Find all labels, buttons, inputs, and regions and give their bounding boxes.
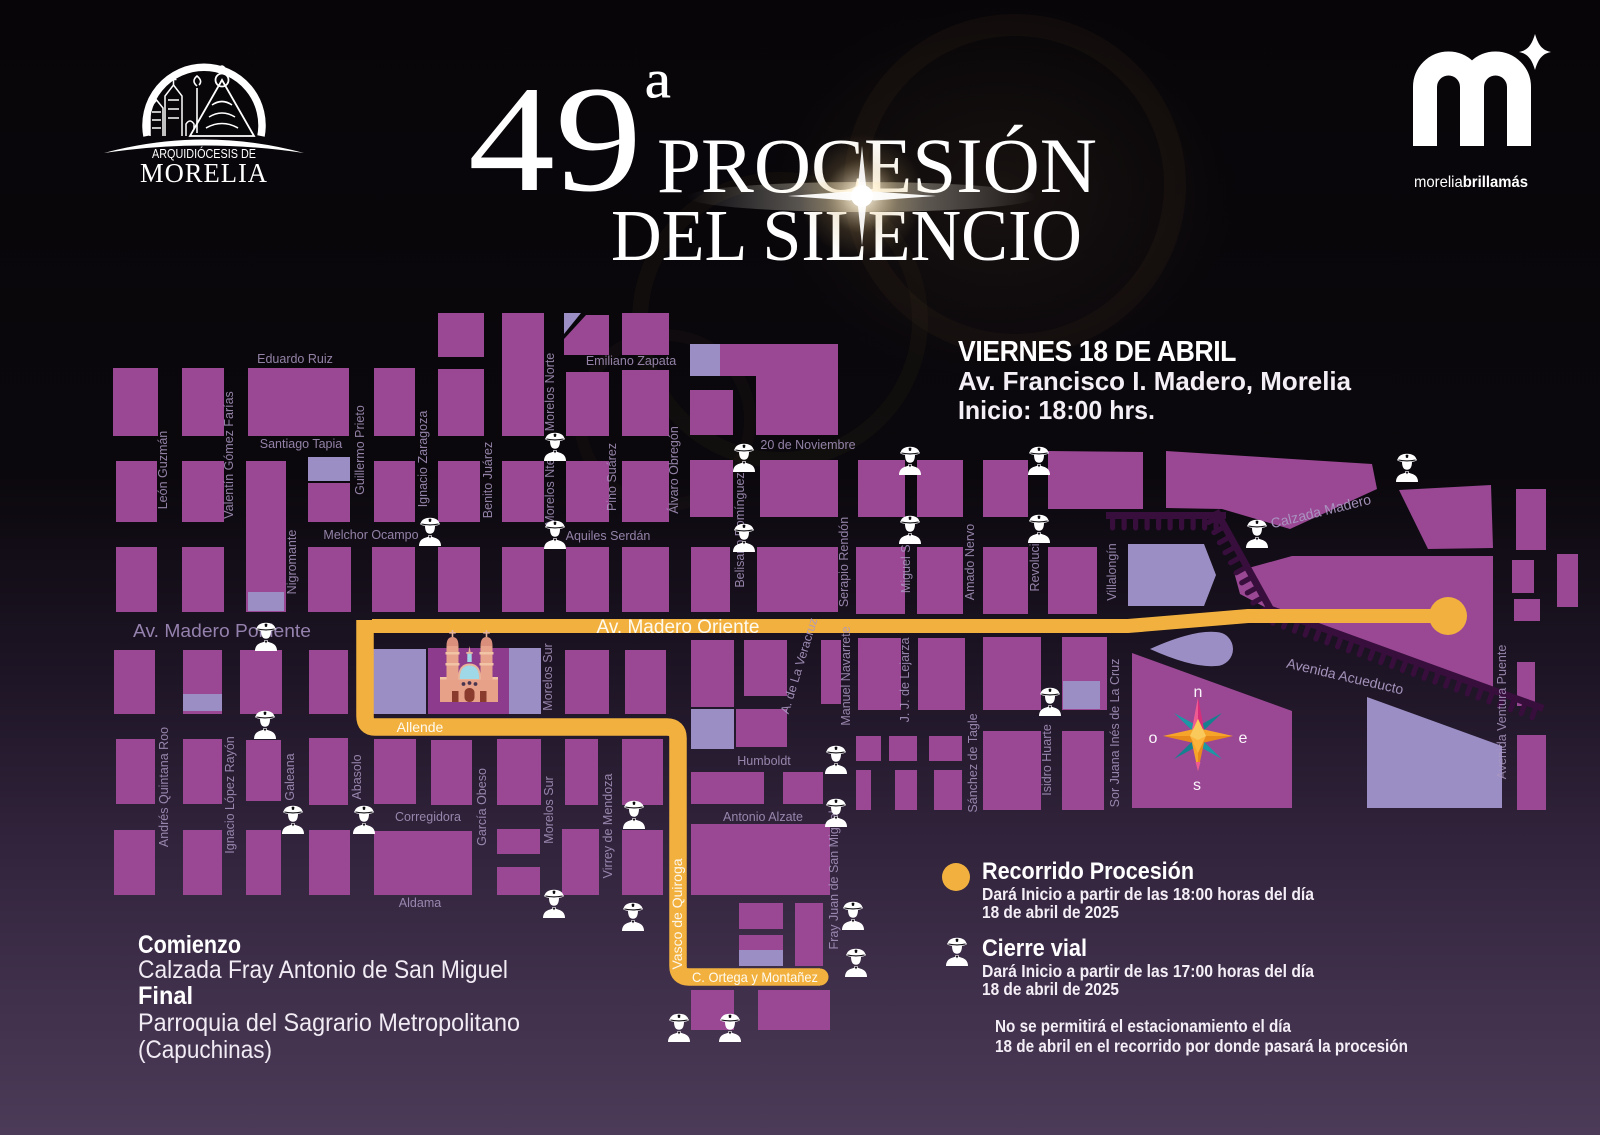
svg-text:Valentín Gómez Farías: Valentín Gómez Farías (222, 391, 236, 519)
svg-text:(Capuchinas): (Capuchinas) (138, 1036, 272, 1064)
svg-text:o: o (1149, 730, 1158, 747)
svg-text:No se permitirá el estacionami: No se permitirá el estacionamiento el dí… (995, 1016, 1291, 1036)
svg-text:Morelos Sur: Morelos Sur (541, 643, 555, 710)
svg-text:Allende: Allende (397, 719, 444, 735)
svg-text:Recorrido Procesión: Recorrido Procesión (982, 858, 1194, 885)
svg-text:Calzada Fray Antonio de San Mi: Calzada Fray Antonio de San Miguel (138, 956, 508, 984)
svg-text:Isidro Huarte: Isidro Huarte (1040, 724, 1054, 796)
svg-text:Andrés Quintana Roo: Andrés Quintana Roo (157, 727, 171, 847)
svg-text:Av. Francisco I. Madero, Morel: Av. Francisco I. Madero, Morelia (958, 366, 1352, 396)
svg-text:Humboldt: Humboldt (737, 754, 791, 768)
svg-text:Virrey de Mendoza: Virrey de Mendoza (601, 774, 615, 879)
svg-text:J. J. de Lejarza: J. J. de Lejarza (898, 638, 912, 723)
svg-text:Guillermo Prieto: Guillermo Prieto (353, 405, 367, 495)
svg-text:18 de abril de 2025: 18 de abril de 2025 (982, 979, 1119, 999)
svg-text:18 de abril en el recorrido po: 18 de abril en el recorrido por donde pa… (995, 1036, 1408, 1056)
svg-text:Final: Final (138, 982, 193, 1010)
svg-text:Galeana: Galeana (283, 753, 297, 800)
svg-text:C. Ortega y Montañez: C. Ortega y Montañez (692, 969, 818, 985)
svg-text:León Guzmán: León Guzmán (156, 431, 170, 510)
svg-text:Villalongín: Villalongín (1105, 543, 1119, 601)
svg-text:Avenida Ventura Puente: Avenida Ventura Puente (1495, 645, 1509, 780)
svg-text:Morelos Norte: Morelos Norte (543, 353, 557, 432)
svg-text:Nigromante: Nigromante (285, 530, 299, 595)
svg-text:Av. Madero Oriente: Av. Madero Oriente (597, 617, 760, 638)
svg-text:Dará Inicio a partir de las 18: Dará Inicio a partir de las 18:00 horas … (982, 884, 1314, 904)
svg-text:Cierre vial: Cierre vial (982, 935, 1087, 962)
svg-text:Manuel Navarrete: Manuel Navarrete (839, 626, 853, 725)
svg-text:Abasolo: Abasolo (350, 754, 364, 799)
svg-text:Álvaro Obregón: Álvaro Obregón (666, 426, 681, 514)
svg-text:Sor Juana Inés de La Cruz: Sor Juana Inés de La Cruz (1108, 659, 1122, 808)
svg-text:moreliabrillamás: moreliabrillamás (1414, 174, 1528, 191)
svg-text:Aldama: Aldama (399, 896, 441, 910)
svg-text:20 de Noviembre: 20 de Noviembre (760, 438, 855, 452)
svg-text:MORELIA: MORELIA (140, 158, 268, 188)
svg-text:s: s (1193, 777, 1201, 794)
svg-text:Morelos Nte: Morelos Nte (543, 458, 557, 525)
svg-text:n: n (1194, 684, 1203, 701)
svg-text:Melchor Ocampo: Melchor Ocampo (323, 528, 418, 542)
svg-text:Eduardo Ruiz: Eduardo Ruiz (257, 352, 333, 366)
svg-text:Inicio: 18:00 hrs.: Inicio: 18:00 hrs. (958, 395, 1155, 425)
svg-text:Emiliano Zapata: Emiliano Zapata (586, 354, 676, 368)
svg-text:Corregidora: Corregidora (395, 810, 461, 824)
svg-text:18 de abril de 2025: 18 de abril de 2025 (982, 902, 1119, 922)
svg-text:Santiago Tapia: Santiago Tapia (260, 437, 343, 451)
svg-text:e: e (1239, 730, 1248, 747)
svg-text:Amado Nervo: Amado Nervo (963, 524, 977, 600)
svg-text:Vasco de Quiroga: Vasco de Quiroga (669, 858, 685, 969)
svg-text:Pino Suárez: Pino Suárez (605, 443, 619, 511)
svg-text:Parroquia del Sagrario Metropo: Parroquia del Sagrario Metropolitano (138, 1009, 520, 1037)
svg-text:Dará Inicio a partir de las 17: Dará Inicio a partir de las 17:00 horas … (982, 961, 1314, 981)
svg-text:Serapio Rendón: Serapio Rendón (837, 517, 851, 607)
svg-text:Miguel Sil: Miguel Sil (899, 539, 913, 593)
svg-text:Comienzo: Comienzo (138, 931, 241, 959)
svg-text:García Obeso: García Obeso (475, 768, 489, 846)
svg-text:Benito Juárez: Benito Juárez (481, 442, 495, 518)
svg-text:Morelos Sur: Morelos Sur (542, 776, 556, 843)
svg-text:Ignacio López Rayón: Ignacio López Rayón (223, 736, 237, 853)
svg-text:Sánchez de Tagle: Sánchez de Tagle (966, 713, 980, 812)
svg-text:Fray Juan de San Miguel: Fray Juan de San Miguel (827, 811, 841, 950)
svg-text:Revolució: Revolució (1028, 537, 1042, 592)
svg-text:Av. Madero Poniente: Av. Madero Poniente (133, 621, 311, 641)
svg-text:Aquiles Serdán: Aquiles Serdán (566, 529, 651, 543)
svg-text:Antonio Alzate: Antonio Alzate (723, 810, 803, 824)
svg-text:VIERNES 18 DE ABRIL: VIERNES 18 DE ABRIL (958, 336, 1236, 368)
svg-text:Ignacio Zaragoza: Ignacio Zaragoza (416, 411, 430, 508)
